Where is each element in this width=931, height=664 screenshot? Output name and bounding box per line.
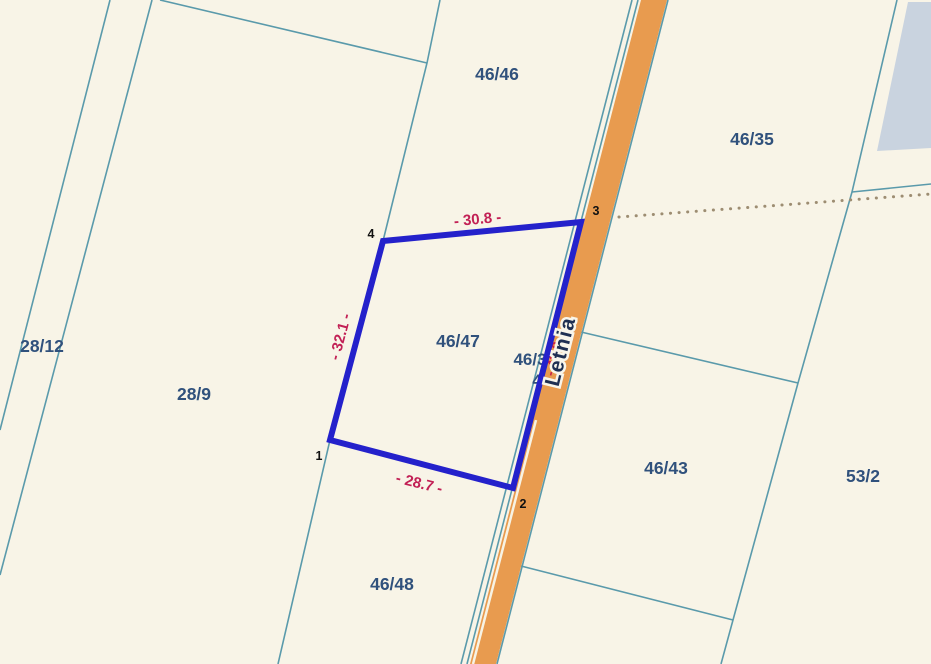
road-outer-edge-left: [461, 0, 632, 664]
boundary-line-north: [160, 0, 427, 63]
dimension-bottom: - 28.7 -: [394, 470, 444, 498]
boundary-line-mid-east: [581, 332, 798, 383]
parcel-label-46-48: 46/48: [370, 574, 414, 594]
map-canvas[interactable]: 46/3 4 - 42.8 - 4 3 1 2 - 30.8 - - 32.1 …: [0, 0, 931, 664]
parcel-label-46-43: 46/43: [644, 458, 688, 478]
dotted-boundary-line: [619, 194, 931, 217]
parcel-label-28-9: 28/9: [177, 384, 211, 404]
boundary-line-east: [721, 0, 897, 664]
parcel-label-28-12: 28/12: [20, 336, 64, 356]
parcel-labels: 46/46 46/35 28/12 28/9 46/47 46/43 53/2 …: [20, 64, 880, 594]
building-footprint: [877, 2, 931, 151]
parcel-label-53-2: 53/2: [846, 466, 880, 486]
parcel-label-46-35: 46/35: [730, 129, 774, 149]
vertex-label-1: 1: [316, 449, 323, 463]
vertex-label-2: 2: [520, 497, 527, 511]
boundary-line-southeast: [521, 566, 733, 620]
boundary-line-west-2: [0, 0, 152, 575]
parcel-label-46-47: 46/47: [436, 331, 480, 351]
cadastral-map: 46/3 4 - 42.8 - 4 3 1 2 - 30.8 - - 32.1 …: [0, 0, 931, 664]
road-edge-right: [497, 0, 668, 664]
parcel-label-46-46: 46/46: [475, 64, 519, 84]
boundary-line-east-branch: [852, 184, 931, 192]
vertex-label-4: 4: [368, 227, 375, 241]
dimension-top: - 30.8 -: [453, 209, 502, 230]
vertex-label-3: 3: [593, 204, 600, 218]
